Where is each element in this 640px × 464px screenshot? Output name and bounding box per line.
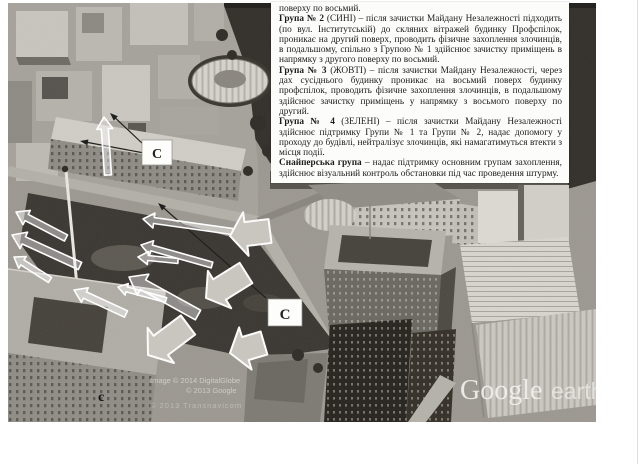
- scanned-page: С С с Image © 2014 DigitalGlobe © 2013 G…: [0, 0, 640, 464]
- sniper-marker-box-b: С: [268, 299, 302, 326]
- credit-line-1: Image © 2014 DigitalGlobe: [150, 376, 240, 385]
- google-logo-text: Google: [460, 375, 542, 406]
- credit-line-2: © 2013 Google: [186, 386, 237, 395]
- sniper-marker-small-label: с: [98, 390, 104, 405]
- group-3-paragraph: Група № 3 (ЖОВТІ) – після зачистки Майда…: [279, 66, 562, 117]
- group-4-paragraph: Група № 4 (ЗЕЛЕНІ) – після зачистки Майд…: [279, 117, 562, 158]
- operation-textbox: поверху по восьмий. Група № 2 (СИНІ) – п…: [271, 2, 569, 183]
- group-2-name: Група № 2: [279, 14, 324, 24]
- group-2-paragraph: Група № 2 (СИНІ) – після зачистки Майдан…: [279, 14, 562, 65]
- intro-line: поверху по восьмий.: [279, 4, 562, 14]
- scan-edge: [637, 0, 638, 464]
- sniper-group-paragraph: Снайперська група – надає підтримку осно…: [279, 158, 562, 179]
- group-4-name: Група № 4: [279, 117, 335, 127]
- credit-line-3: © 2013 Transnavicom: [150, 401, 242, 410]
- sniper-group-name: Снайперська група: [279, 158, 362, 168]
- sniper-marker-box-a: С: [142, 140, 172, 165]
- sniper-marker-b-label: С: [280, 307, 291, 323]
- sniper-marker-a-label: С: [152, 147, 162, 162]
- group-3-name: Група № 3: [279, 66, 327, 76]
- google-earth-watermark: Google earth: [460, 375, 596, 406]
- earth-logo-text: earth: [551, 378, 596, 404]
